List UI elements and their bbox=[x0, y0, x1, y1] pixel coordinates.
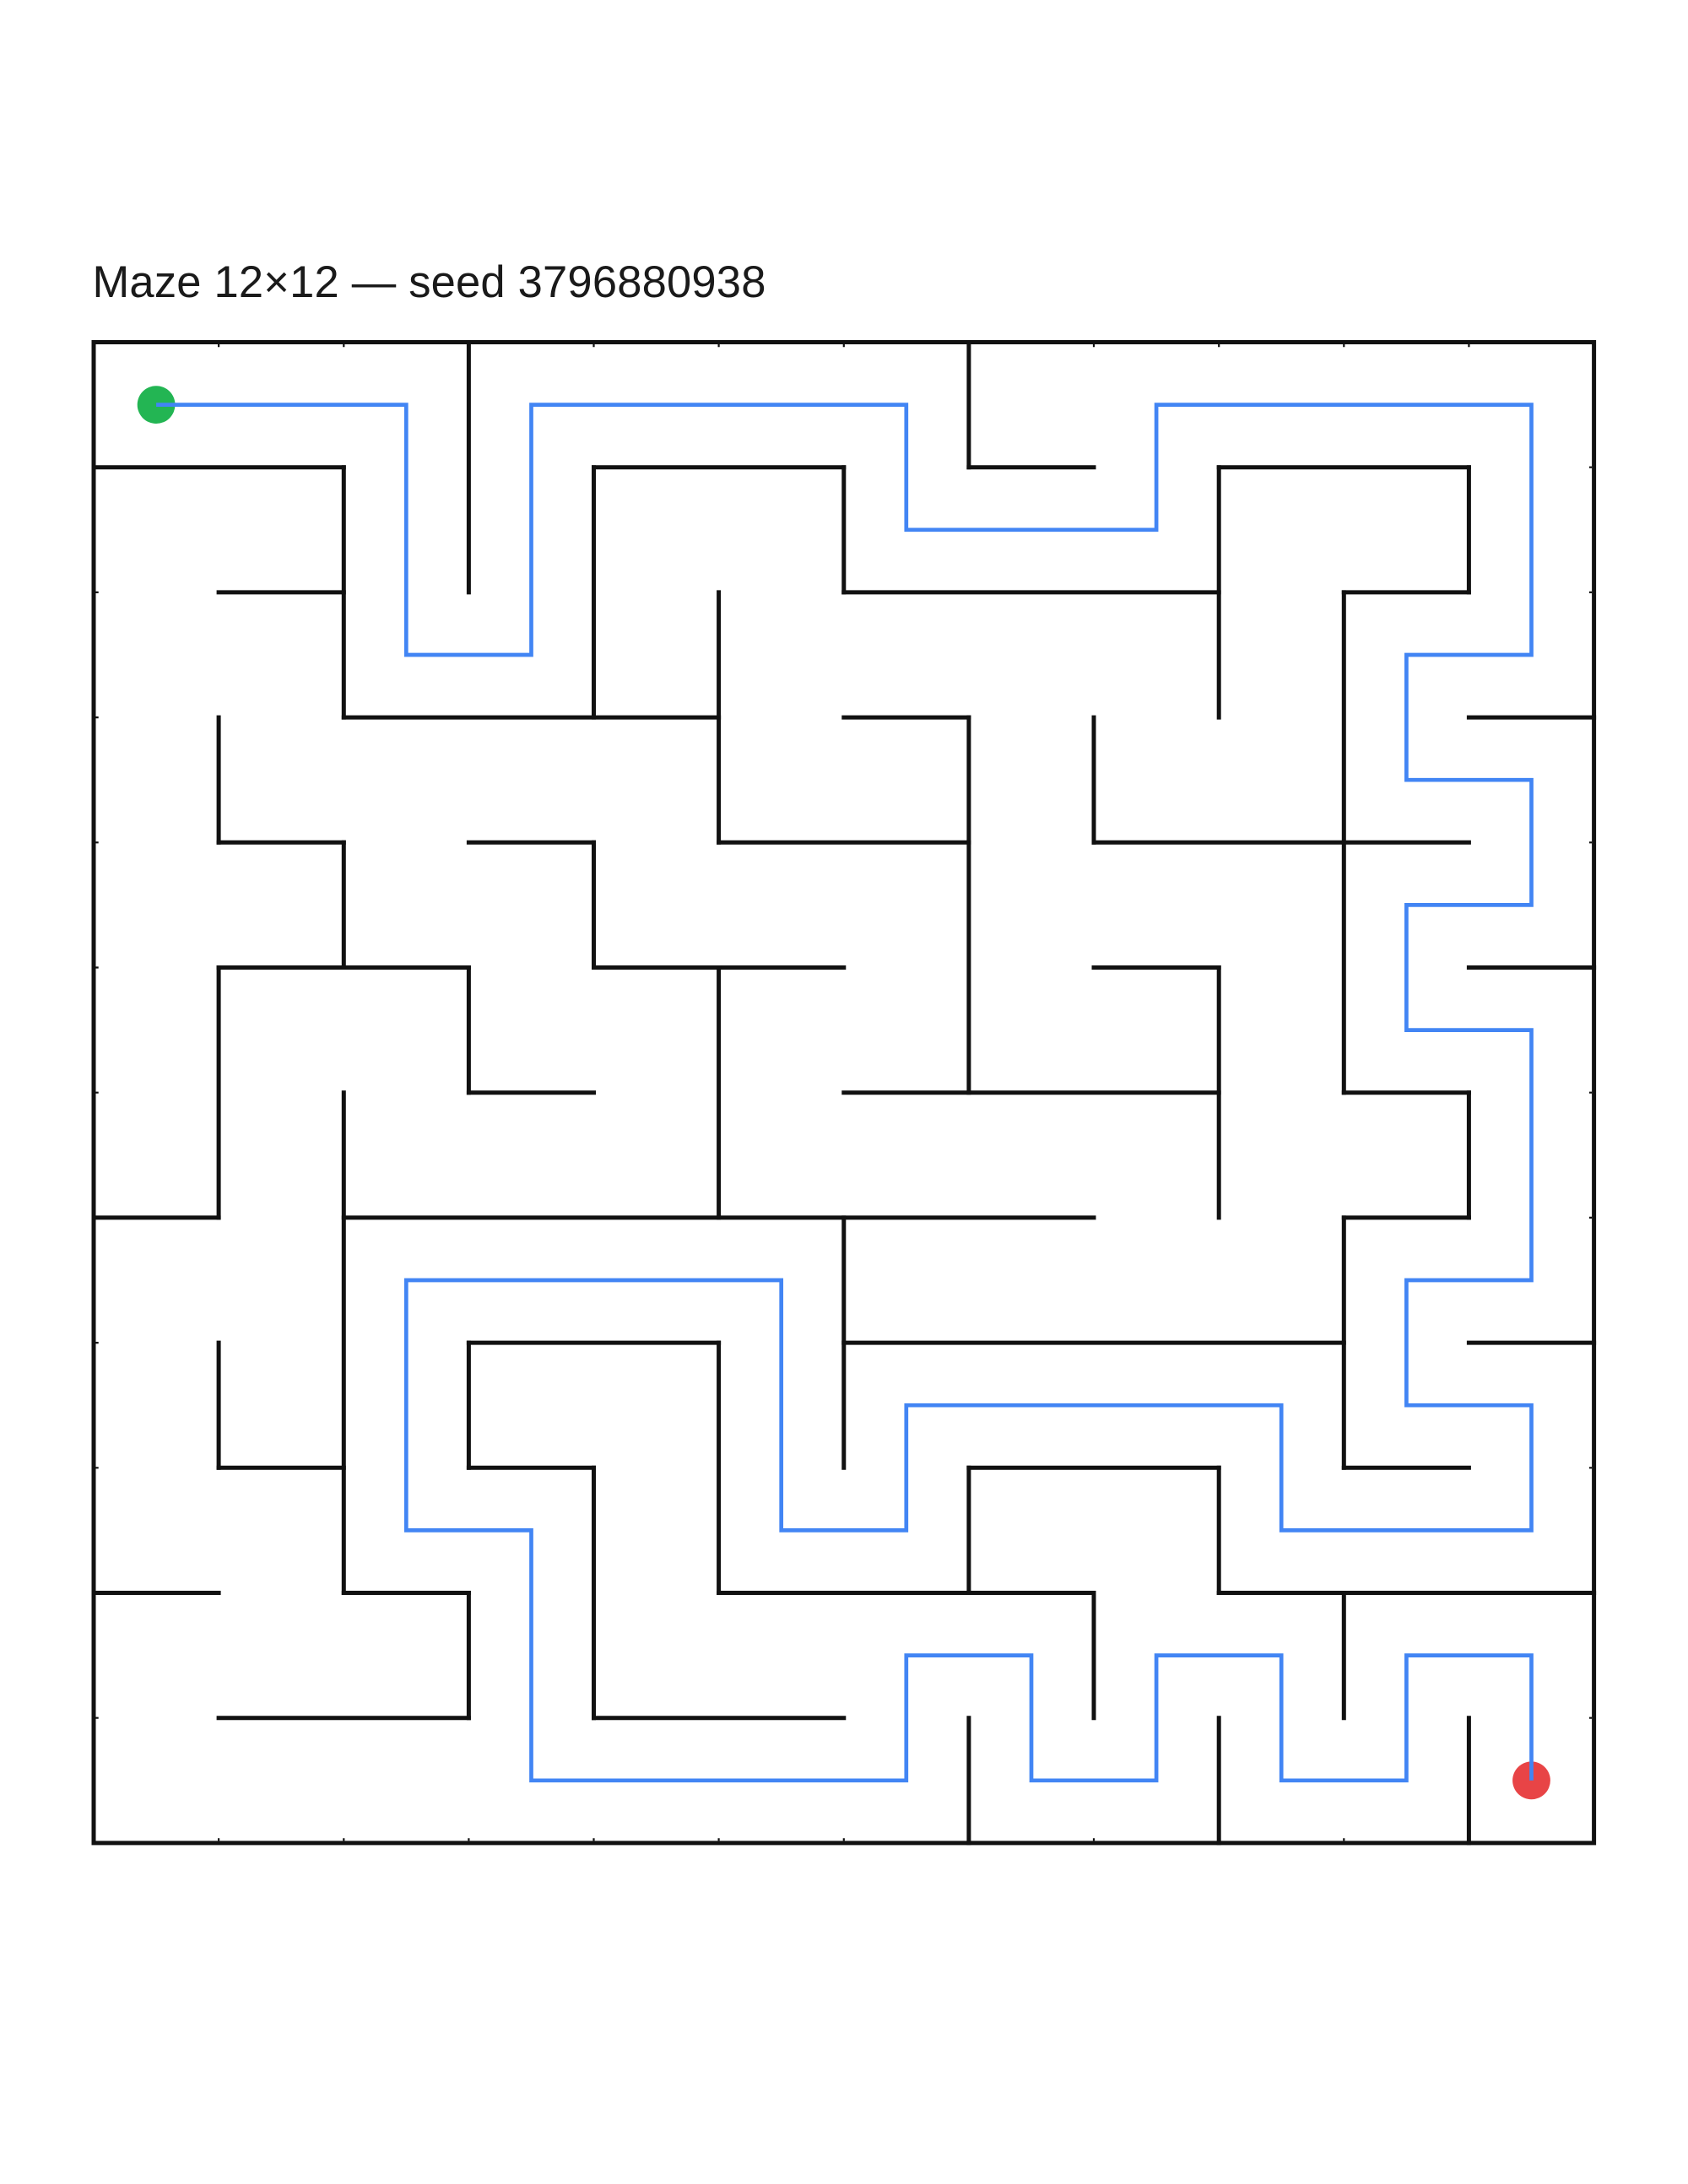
svg-text:Maze 12×12 — seed 3796880938: Maze 12×12 — seed 3796880938 bbox=[93, 257, 766, 307]
